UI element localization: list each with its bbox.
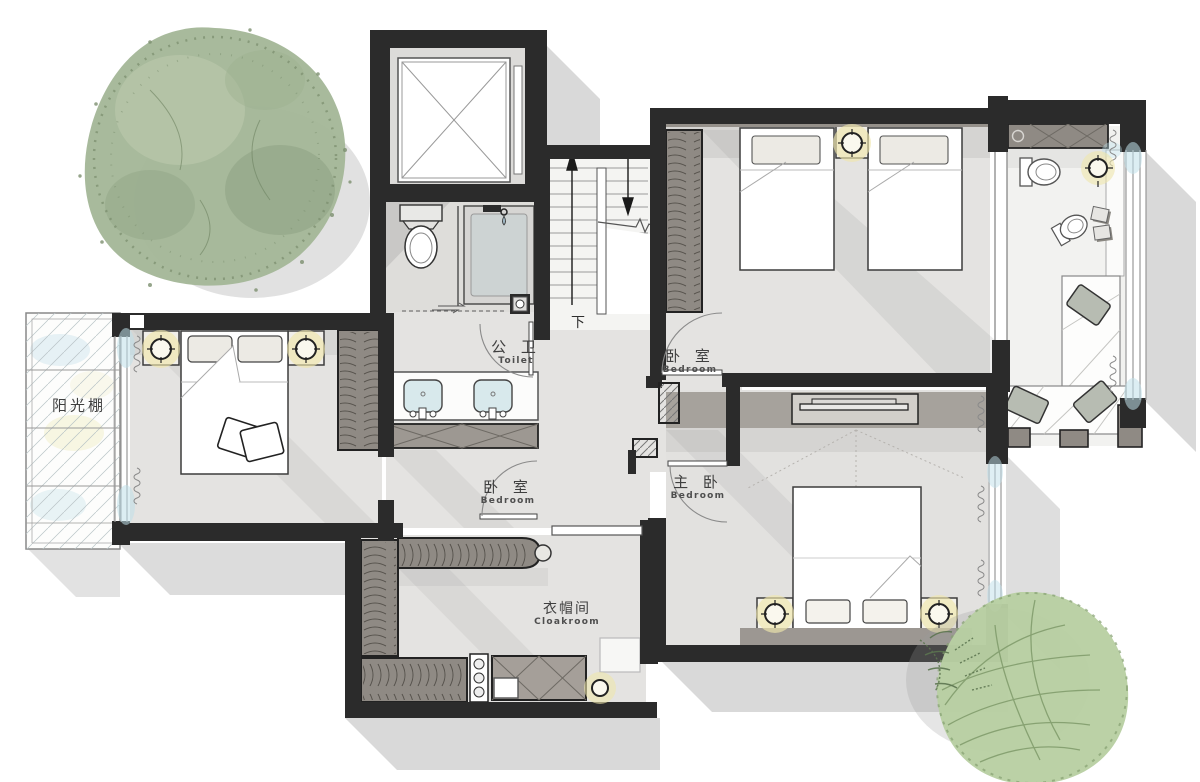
- counterweight: [514, 66, 522, 174]
- floor-plan-drawing: [0, 0, 1200, 782]
- shower-icon: [464, 205, 534, 304]
- vanity-cabinet: [386, 424, 538, 448]
- tree-top-left: [78, 27, 370, 298]
- pillow: [863, 600, 907, 623]
- knob-icon: [535, 545, 551, 561]
- floor-plan: 阳光棚 公 卫 Toilet 卧 室 Bedroom 卧 室 Bedroom 主…: [0, 0, 1200, 782]
- sink-icon: [404, 380, 442, 419]
- partition-wall: [995, 142, 1007, 342]
- tv-icon: [800, 404, 908, 410]
- pillow: [880, 136, 948, 164]
- label-stairs-down: 下: [571, 312, 585, 332]
- column: [1008, 428, 1030, 447]
- sink-icon: [474, 380, 512, 419]
- hall-vanity: [386, 372, 538, 448]
- floor-drain-icon: [510, 294, 530, 314]
- stool: [1093, 225, 1113, 242]
- elevator-shaft: [398, 58, 522, 182]
- lamp-icon: [592, 680, 608, 696]
- stool: [600, 638, 640, 672]
- pillow: [238, 336, 282, 362]
- column: [1060, 430, 1088, 447]
- toilet-icon: [1020, 158, 1060, 186]
- pillow: [806, 600, 850, 623]
- pillow: [752, 136, 820, 164]
- sunroom-glass-roof: [26, 313, 120, 549]
- window-right: [1126, 150, 1146, 400]
- washer-icon: [494, 678, 518, 698]
